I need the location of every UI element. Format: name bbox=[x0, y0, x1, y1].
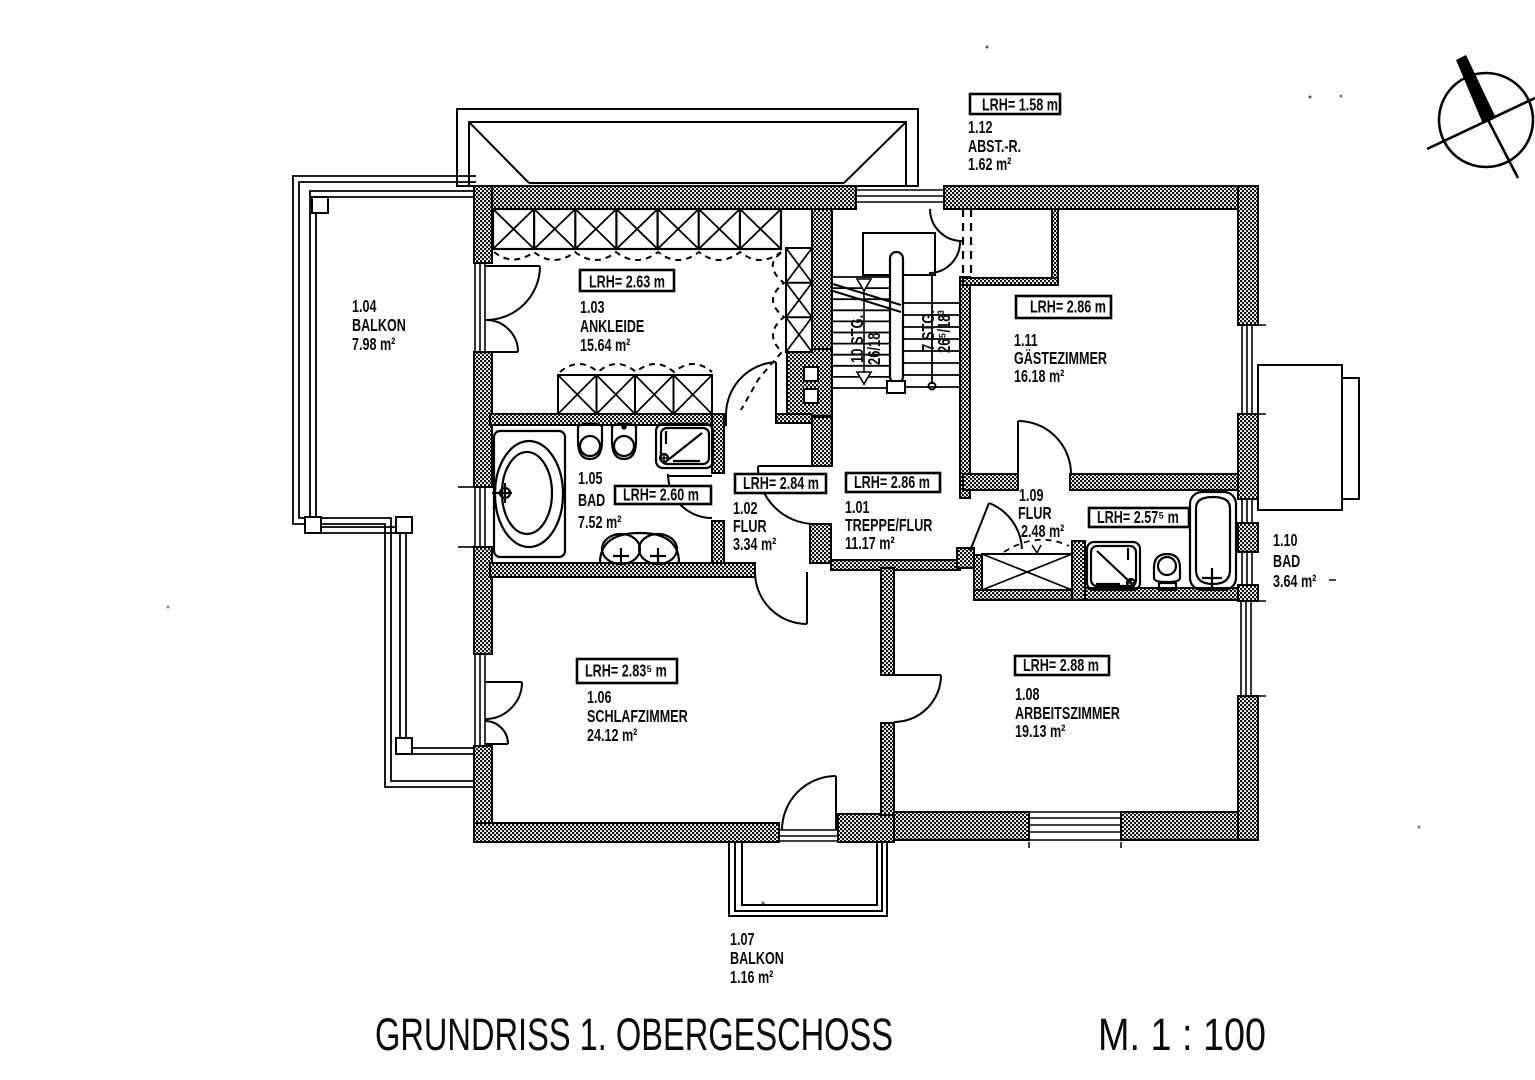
svg-text:1.05: 1.05 bbox=[578, 469, 603, 489]
svg-text:1.06: 1.06 bbox=[587, 688, 612, 708]
svg-text:LRH= 1.58 m: LRH= 1.58 m bbox=[982, 95, 1058, 115]
svg-text:SCHLAFZIMMER: SCHLAFZIMMER bbox=[587, 707, 688, 727]
svg-text:1.11: 1.11 bbox=[1014, 331, 1038, 351]
svg-text:LRH= 2.60 m: LRH= 2.60 m bbox=[623, 485, 699, 505]
svg-text:1.04: 1.04 bbox=[352, 297, 377, 317]
svg-text:FLUR: FLUR bbox=[733, 517, 767, 537]
svg-text:GRUNDRISS 1. OBERGESCHOSS: GRUNDRISS 1. OBERGESCHOSS bbox=[375, 1009, 893, 1060]
svg-text:1.10: 1.10 bbox=[1273, 531, 1297, 551]
svg-text:1.03: 1.03 bbox=[580, 298, 605, 318]
svg-text:24.12 m²: 24.12 m² bbox=[587, 726, 637, 746]
svg-text:19.13 m²: 19.13 m² bbox=[1015, 722, 1065, 742]
svg-text:LRH= 2.86 m: LRH= 2.86 m bbox=[854, 473, 930, 493]
svg-text:LRH= 2.57⁵ m: LRH= 2.57⁵ m bbox=[1097, 508, 1179, 528]
svg-text:2.48 m²: 2.48 m² bbox=[1021, 522, 1064, 542]
svg-text:1.62 m²: 1.62 m² bbox=[968, 155, 1011, 175]
svg-text:BAD: BAD bbox=[578, 491, 605, 511]
svg-text:1.12: 1.12 bbox=[968, 118, 993, 138]
svg-text:BALKON: BALKON bbox=[352, 316, 406, 336]
svg-text:26⁵/18³: 26⁵/18³ bbox=[935, 310, 955, 353]
svg-text:M. 1 : 100: M. 1 : 100 bbox=[1098, 1009, 1266, 1060]
svg-text:1.01: 1.01 bbox=[845, 498, 870, 518]
svg-text:11.17 m²: 11.17 m² bbox=[845, 534, 895, 554]
svg-text:26/18: 26/18 bbox=[865, 332, 885, 365]
svg-text:3.64 m²: 3.64 m² bbox=[1273, 572, 1316, 592]
svg-text:15.64 m²: 15.64 m² bbox=[580, 336, 630, 356]
svg-text:ANKLEIDE: ANKLEIDE bbox=[580, 317, 644, 337]
svg-text:LRH= 2.86 m: LRH= 2.86 m bbox=[1030, 297, 1106, 317]
svg-text:1.09: 1.09 bbox=[1019, 486, 1044, 506]
svg-text:7.98 m²: 7.98 m² bbox=[352, 335, 395, 355]
svg-text:LRH= 2.88 m: LRH= 2.88 m bbox=[1023, 656, 1099, 676]
svg-text:7.52 m²: 7.52 m² bbox=[578, 513, 621, 533]
svg-text:3.34 m²: 3.34 m² bbox=[733, 535, 776, 555]
svg-text:1.07: 1.07 bbox=[730, 930, 754, 950]
svg-text:LRH= 2.63 m: LRH= 2.63 m bbox=[589, 272, 665, 292]
svg-text:BAD: BAD bbox=[1273, 552, 1300, 572]
svg-text:1.08: 1.08 bbox=[1015, 685, 1040, 705]
svg-text:LRH= 2.83⁵ m: LRH= 2.83⁵ m bbox=[585, 661, 667, 681]
svg-text:GÄSTEZIMMER: GÄSTEZIMMER bbox=[1014, 349, 1107, 369]
svg-text:ARBEITSZIMMER: ARBEITSZIMMER bbox=[1015, 704, 1120, 724]
svg-text:16.18 m²: 16.18 m² bbox=[1014, 367, 1064, 387]
svg-text:FLUR: FLUR bbox=[1018, 504, 1052, 524]
svg-text:LRH= 2.84 m: LRH= 2.84 m bbox=[743, 474, 819, 494]
svg-text:TREPPE/FLUR: TREPPE/FLUR bbox=[845, 516, 932, 536]
svg-text:1.02: 1.02 bbox=[733, 499, 758, 519]
svg-text:BALKON: BALKON bbox=[730, 949, 784, 969]
svg-text:1.16 m²: 1.16 m² bbox=[730, 968, 773, 988]
svg-text:ABST.-R.: ABST.-R. bbox=[968, 137, 1021, 157]
